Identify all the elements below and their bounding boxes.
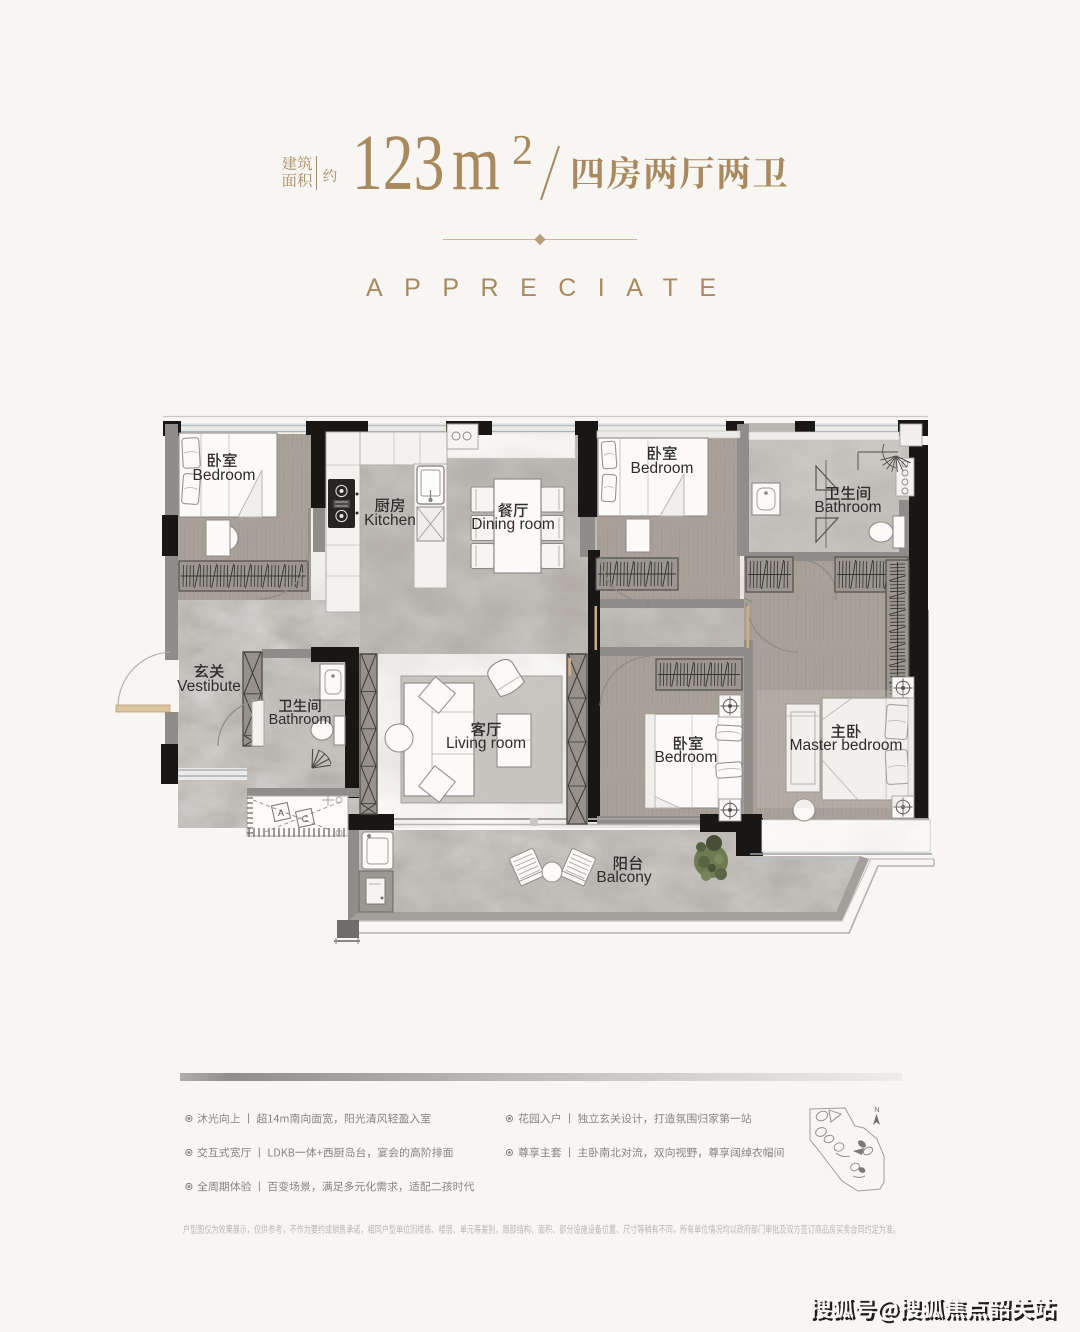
- svg-text:Bedroom: Bedroom: [655, 749, 718, 766]
- svg-text:Vestibute: Vestibute: [177, 678, 241, 695]
- svg-text:C: C: [302, 814, 309, 824]
- svg-text:N: N: [874, 1105, 879, 1114]
- svg-text:Master bedroom: Master bedroom: [790, 737, 903, 754]
- svg-text:APPRECIATE: APPRECIATE: [366, 274, 738, 302]
- svg-text:123: 123: [352, 120, 444, 207]
- svg-text:Bedroom: Bedroom: [631, 460, 694, 477]
- svg-text:m: m: [452, 120, 500, 207]
- svg-text:2: 2: [512, 128, 533, 174]
- svg-text:Bathroom: Bathroom: [269, 712, 332, 728]
- svg-text:Living room: Living room: [446, 735, 526, 752]
- svg-text:Dining room: Dining room: [471, 516, 555, 533]
- svg-text:Balcony: Balcony: [596, 869, 651, 886]
- svg-text:Bedroom: Bedroom: [193, 467, 256, 484]
- svg-text:Bathroom: Bathroom: [814, 499, 881, 516]
- svg-text:A: A: [278, 808, 284, 818]
- svg-text:Kitchen: Kitchen: [364, 512, 416, 529]
